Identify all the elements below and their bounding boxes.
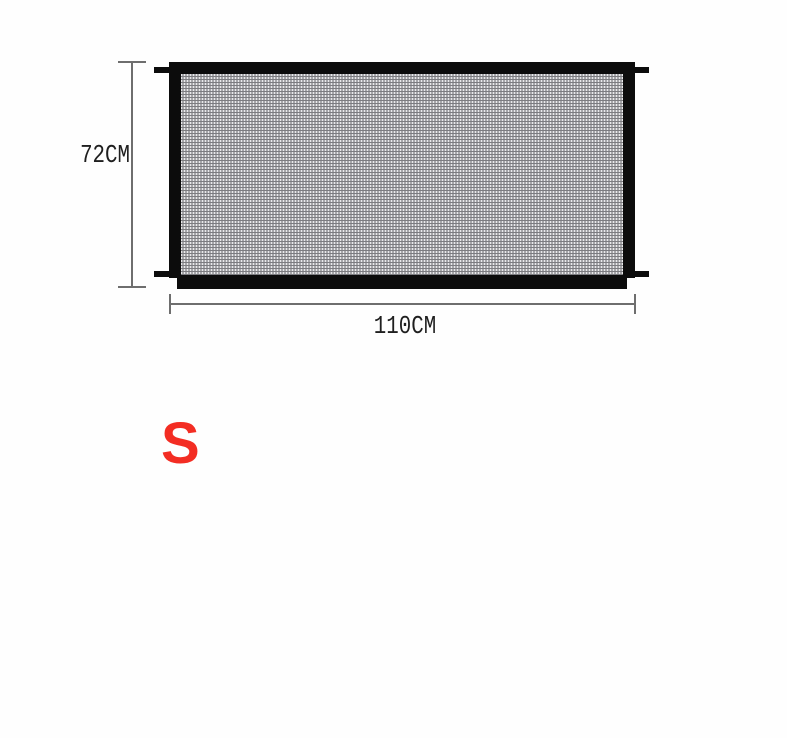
height-dimension-cap-bottom bbox=[118, 286, 146, 288]
height-dimension-label: 72CM bbox=[66, 141, 130, 170]
width-dimension-tick-right bbox=[634, 294, 636, 314]
width-dimension-line bbox=[169, 303, 636, 305]
gate-bottom-bar bbox=[177, 276, 627, 289]
gate-mounting-tab-bottom-right bbox=[634, 271, 649, 277]
product-dimension-diagram: 72CM 110CM S bbox=[0, 0, 787, 738]
width-dimension-tick-left bbox=[169, 294, 171, 314]
gate-mounting-tab-top-right bbox=[634, 67, 649, 73]
height-dimension-cap-top bbox=[118, 61, 146, 63]
height-dimension-line bbox=[131, 62, 133, 288]
width-dimension-label: 110CM bbox=[345, 312, 465, 341]
size-option-label: S bbox=[161, 415, 200, 473]
gate-mesh bbox=[181, 74, 623, 275]
gate-mounting-tab-top-left bbox=[154, 67, 169, 73]
gate-mounting-tab-bottom-left bbox=[154, 271, 169, 277]
